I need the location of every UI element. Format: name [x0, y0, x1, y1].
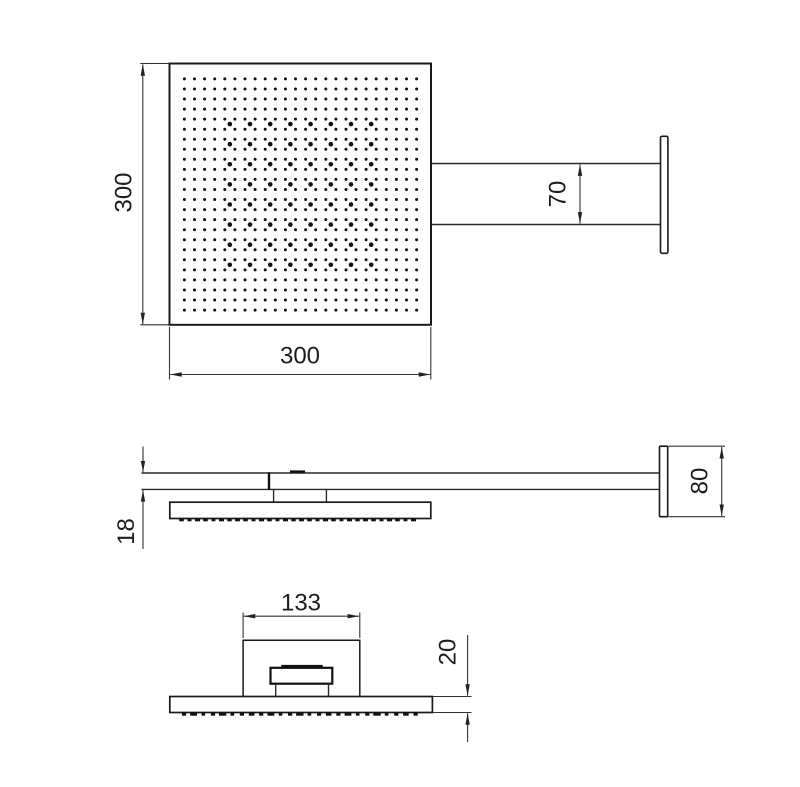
- svg-text:133: 133: [281, 590, 321, 617]
- svg-text:20: 20: [435, 639, 462, 666]
- svg-text:80: 80: [687, 468, 714, 495]
- svg-text:300: 300: [280, 343, 320, 370]
- svg-text:18: 18: [113, 518, 140, 545]
- svg-text:70: 70: [545, 181, 572, 208]
- svg-text:300: 300: [111, 172, 138, 212]
